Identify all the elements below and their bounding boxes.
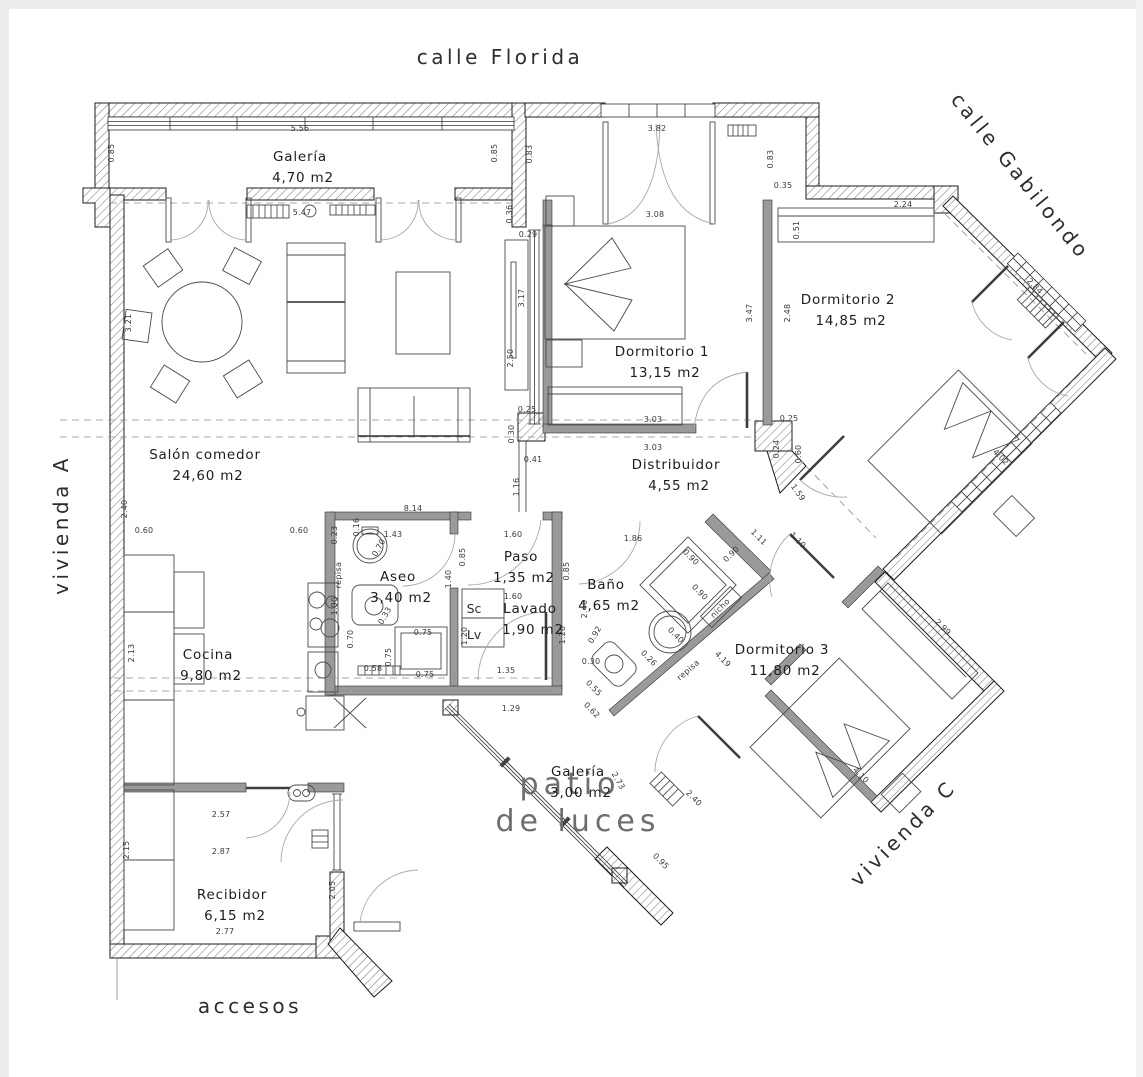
dimension-label: 0.92 [586,624,603,645]
dimension-label: 3.17 [517,289,526,308]
room-label-cocina: Cocina [183,647,234,663]
dimension-label: 1.40 [444,570,453,589]
dimension-label: 0.24 [772,440,781,459]
room-label-recibidor: Recibidor [197,887,267,903]
dimension-label: 0.29 [519,230,538,239]
dimension-label: 2.13 [127,644,136,663]
dimension-label: 8.14 [404,504,423,513]
dimension-label: 3.21 [124,314,133,333]
dimension-label: 0.36 [505,205,514,224]
dimension-label: 1.60 [504,592,523,601]
dining-table [162,282,242,362]
dimension-label: 0.75 [416,670,435,679]
room-label-bano: Baño [587,577,625,593]
sofa-small [358,388,470,442]
dimension-label: 3.03 [644,443,663,452]
chair [150,365,189,403]
dimension-label: 5.56 [291,124,310,133]
room-label-aseo: Aseo [380,569,416,585]
dimension-label: 2.87 [212,847,231,856]
door-leaf [376,198,381,242]
dimension-label: 0.75 [384,648,393,667]
room-area-dormitorio-2: 14,85 m2 [815,313,886,329]
closet-dorm2 [778,208,934,242]
dimension-label: 2.40 [684,788,704,808]
dimension-label: 1.90 [330,597,339,616]
dimension-label: 0.25 [780,414,799,423]
dimension-label: 1.29 [502,704,521,713]
dimension-label: 0.25 [518,405,537,414]
dimension-label: 2.48 [783,304,792,323]
dimension-label: 0.60 [135,526,154,535]
dimension-label: 0.16 [352,518,361,537]
annotation-label: repisa [675,658,701,682]
dimension-label: 1.86 [624,534,643,543]
dimension-label: 2.40 [580,600,589,619]
room-label-dormitorio-2: Dormitorio 2 [801,292,895,308]
dimension-label: 0.55 [584,678,604,698]
dimension-label: 3.82 [648,124,667,133]
chair [143,249,182,288]
room-label-lavado: Lavado [503,601,557,617]
hall-cabinet [124,790,174,930]
dimension-label: 2.50 [506,349,515,368]
closet-label: Sc [467,601,482,616]
dimension-label: 0.83 [525,145,534,164]
balcony-door-leaf [972,266,1008,302]
dimension-label: 1.16 [512,478,521,497]
dimension-label: 1.60 [504,530,523,539]
dimension-label: 0.58 [364,664,383,673]
door-leaf [800,436,844,480]
room-area-dormitorio-3: 11,80 m2 [749,663,820,679]
radiator [330,205,375,215]
room-area-aseo: 3,40 m2 [370,590,432,606]
door-leaf [710,122,715,224]
room-label-dormitorio-3: Dormitorio 3 [735,642,829,658]
dimension-label: 1.43 [384,530,403,539]
dimension-label: 0.41 [524,455,543,464]
street-label: calle Florida [417,45,584,69]
dimension-label: 0.70 [346,630,355,649]
room-label-dormitorio-1: Dormitorio 1 [615,344,709,360]
room-area-galeria-patio: 3,00 m2 [550,785,612,801]
dimension-label: 2.15 [122,841,131,860]
floor-plan-canvas: calle Floridacalle Gabilondovivienda Avi… [0,0,1143,1077]
dimension-label: 1.35 [497,666,516,675]
room-label-galeria-patio: Galería [551,764,605,780]
chair [223,247,262,284]
dimension-label: 3.03 [644,415,663,424]
room-area-galeria-norte: 4,70 m2 [272,170,334,186]
dimension-label: 0.75 [414,628,433,637]
radiator [728,125,756,136]
dashed-beam-lines [60,203,1090,1000]
dimension-label: 3.08 [646,210,665,219]
room-area-distribuidor: 4,55 m2 [648,478,710,494]
dimension-label: 2.24 [894,200,913,209]
dimension-label: 2.40 [120,500,129,519]
dimension-label: 0.90 [690,582,710,602]
dimension-label: 2.57 [212,810,231,819]
window-ne-facade [1007,253,1085,331]
dimension-label: 0.85 [458,548,467,567]
dimension-label: 0.60 [290,526,309,535]
washing-machine [297,696,366,730]
window-recibidor-hall [332,794,342,870]
chair [223,360,262,398]
room-label-paso: Paso [504,549,538,565]
door-leaf [456,198,461,242]
street-label: calle Gabilondo [946,88,1095,264]
bed-dorm1 [545,226,685,339]
dimension-label: 0.85 [562,562,571,581]
door-leaf [698,716,740,758]
room-label-distribuidor: Distribuidor [632,457,721,473]
dimension-label: 0.30 [582,657,601,666]
room-area-salon-comedor: 24,60 m2 [172,468,243,484]
dimension-label: 3.47 [745,304,754,323]
dimension-label: 5.47 [293,208,312,217]
dimension-label: 0.85 [490,144,499,163]
dimension-label: 0.62 [582,700,602,720]
door-leaf [603,122,608,224]
dimension-label: 1.20 [558,626,567,645]
closet-label: Lv [467,627,482,642]
nightstand [993,495,1034,536]
floor-plan-page: calle Floridacalle Gabilondovivienda Avi… [0,0,1143,1077]
annotation-label: repisa [334,562,343,589]
dimension-label: 1.59 [789,482,807,502]
street-label: de luces [496,804,661,839]
dimension-label: 0.23 [330,526,339,545]
dimension-label: 0.30 [507,425,516,444]
dimension-label: 1.11 [749,527,769,547]
dimension-label: 2.77 [216,927,235,936]
radiator [247,205,289,218]
room-area-lavado: 1,90 m2 [502,622,564,638]
dimension-label: 0.60 [794,445,803,464]
dimension-label: 0.83 [766,150,775,169]
dimension-label: 0.51 [792,221,801,240]
dimension-label: 0.85 [107,144,116,163]
room-area-paso: 1,35 m2 [493,570,555,586]
room-area-recibidor: 6,15 m2 [204,908,266,924]
dimension-label: 0.26 [639,648,659,668]
radiator [650,772,684,806]
dimension-label: 0.33 [376,605,393,626]
dimension-label: 2.05 [328,881,337,900]
dimension-label: 0.35 [774,181,793,190]
dimension-label: 4.19 [713,649,733,669]
room-area-cocina: 9,80 m2 [180,668,242,684]
door-leaf [166,198,171,242]
dimension-label: 0.90 [681,547,701,567]
street-label: accesos [198,994,302,1018]
partition-distribuidor-paso [519,441,526,512]
coffee-table [396,272,450,354]
street-label: vivienda A [49,455,73,595]
room-label-galeria-norte: Galería [273,149,327,165]
sofa-large [287,243,345,373]
room-area-dormitorio-1: 13,15 m2 [629,365,700,381]
entry-door-leaf [354,922,400,931]
hall-shelf [312,830,328,848]
dimension-label: 0.95 [651,851,671,871]
window-dorm1-galeria [528,230,541,424]
room-label-salon-comedor: Salón comedor [149,447,261,463]
